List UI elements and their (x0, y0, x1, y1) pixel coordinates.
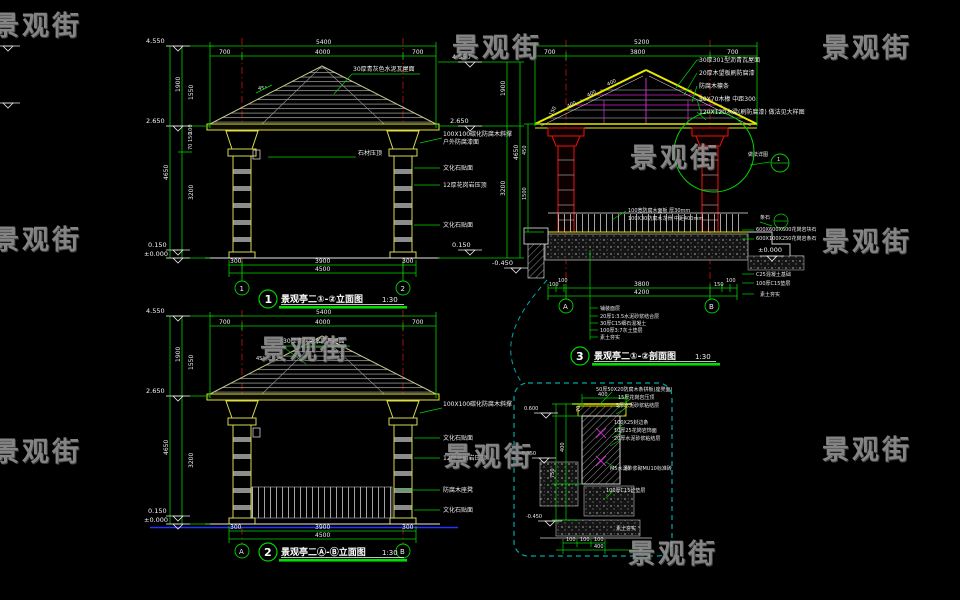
dim-label: 4000 (315, 319, 330, 326)
note-label: C25混凝土基础 (756, 271, 791, 278)
dim-label: 300 (230, 524, 242, 531)
note-label: 5厚水泥砂浆粘结层 (616, 402, 659, 409)
dim-label: 150 (188, 132, 194, 142)
cad-drawing-sheet: 5400 700 4000 700 300 3900 300 4500 4650… (0, 0, 960, 600)
note-label: 文化石贴面 (443, 164, 473, 172)
dim-label: 1550 (188, 355, 195, 370)
dim-label: 700 (412, 319, 424, 326)
drawing-4-detail: 400 400 750 70 30 100 100 100 400 0.600 … (511, 280, 673, 556)
dim-label: 400 (560, 442, 566, 452)
dim-label: 3900 (315, 524, 330, 531)
dim-label: 1500 (522, 187, 528, 200)
dim-label: 100 (580, 537, 590, 543)
note-label: 600X100X250花岗岩条石 (756, 235, 816, 242)
dim-label: 700 (412, 49, 424, 56)
dim-label: 100 (566, 537, 576, 543)
note-label: 防腐木座凳 (443, 486, 473, 494)
dim-label: 3200 (188, 185, 195, 200)
drawing-scale: 1:30 (695, 353, 711, 361)
dim-label: 4650 (163, 165, 170, 180)
note-label: 石材压顶 (358, 149, 382, 157)
note-label: 文化石贴面 (443, 221, 473, 229)
note-label: 15厚花岗岩压顶 (618, 394, 654, 401)
axis-label: A (239, 548, 244, 556)
note-label: M5水泥砂浆砌MU10标准砖 (610, 465, 672, 472)
note-label: 30厚C15细石混凝土 (600, 320, 646, 327)
dim-label: 3200 (500, 181, 507, 196)
dim-label: 300 (402, 524, 414, 531)
dim-label: 4500 (315, 266, 330, 273)
drawing-3-title: 3 景观亭二①-②剖面图 1:30 (571, 347, 720, 366)
note-label: 20厚水泥砂浆粘结层 (614, 435, 660, 442)
dim-label: 70 (576, 406, 582, 412)
axis-label: A (563, 303, 568, 311)
slope-dim: 400 (566, 100, 577, 110)
elevation-label: 2.650 (450, 117, 469, 125)
dim-label: 3800 (634, 281, 649, 288)
axis-label: B (709, 303, 714, 311)
watermark: 景观街 (630, 136, 720, 175)
cad-canvas[interactable]: 5400 700 4000 700 300 3900 300 4500 4650… (0, 0, 960, 600)
axis-bubbles-3: A B (559, 299, 719, 313)
note-label: 20厚木望板刷防腐漆 (699, 69, 755, 77)
dim-label: 150 (714, 282, 724, 288)
note-label: 12厚花岗岩压顶 (443, 181, 487, 189)
elevation-label: 0.600 (524, 406, 538, 412)
drawing-1-title: 1 景观亭二①-②立面图 1:30 (259, 290, 407, 309)
dim-label: 3800 (630, 49, 645, 56)
note-label: 素土夯实 (760, 291, 780, 298)
elevation-label: 2.650 (146, 387, 165, 395)
dim-label: 700 (219, 49, 231, 56)
dim-label: 5400 (316, 39, 331, 46)
note-label: 10厚25花岗岩饰面 (614, 427, 657, 434)
note-label: 100厚3:7灰土垫层 (600, 327, 643, 334)
axis-label: B (400, 548, 405, 556)
dim-label: 4000 (315, 49, 330, 56)
elevation-label: 0.150 (452, 241, 471, 249)
dim-label: 4200 (634, 289, 649, 296)
detail-leader-curve (511, 280, 547, 383)
drawing-scale: 1:30 (382, 549, 398, 557)
note-label: 100宽防腐木面板 厚30mm (628, 207, 690, 214)
note-label: 条石 (760, 214, 770, 221)
dim-label: 300 (402, 258, 414, 265)
elevation-label: 4.550 (146, 37, 165, 45)
note-label: 素土夯实 (616, 525, 636, 532)
deck-boards (252, 487, 392, 518)
dim-label: 700 (219, 319, 231, 326)
watermark: 景观街 (822, 26, 912, 65)
watermark: 景观街 (0, 218, 82, 257)
dim-label: 1550 (188, 85, 195, 100)
watermark: 景观街 (444, 435, 534, 474)
note-label: 100厚C15垫层 (756, 280, 790, 287)
elevation-label: 0.150 (148, 241, 167, 249)
drawing-number: 1 (265, 293, 273, 306)
column-tag-box (253, 428, 260, 437)
dim-label: 400 (594, 544, 604, 550)
note-label: 100厚C15砼垫层 (606, 487, 645, 494)
watermark: 景观街 (822, 220, 912, 259)
elevation-label: ±0.000 (144, 516, 168, 524)
elevation-label: 4.550 (146, 307, 165, 315)
note-label: 素土夯实 (600, 334, 620, 341)
dim-label: 3200 (188, 453, 195, 468)
watermark: 景观街 (822, 428, 912, 467)
dim-label: 4650 (513, 145, 520, 160)
watermark: 景观街 (260, 328, 350, 367)
elevation-label: ±0.000 (144, 250, 168, 258)
watermark: 景观街 (0, 4, 82, 43)
dim-label: 750 (550, 468, 556, 478)
watermark: 景观街 (0, 430, 82, 469)
drawing-2-title: 2 景观亭二Ⓐ-Ⓑ立面图 1:30 (259, 543, 407, 562)
note-label: 100X25封边条 (614, 419, 648, 426)
note-label: 30厚301型沥青瓦屋面 (699, 56, 760, 64)
dim-label: 1900 (500, 81, 507, 96)
dim-label: 1900 (175, 77, 182, 92)
elevation-label: ±0.000 (758, 246, 782, 254)
detail-ref-label: 做法详图 (748, 151, 768, 158)
note-label: 铺装面层 (600, 305, 620, 312)
note-label: 户外防腐漆面 (443, 138, 479, 146)
elevation-label: 2.650 (146, 117, 165, 125)
dim-label: 70 (188, 144, 194, 150)
watermark: 景观街 (452, 26, 542, 65)
drawing-title: 景观亭二①-②剖面图 (594, 350, 676, 362)
note-label: 防腐木檩条 (699, 82, 729, 90)
dim-label: 100 (594, 537, 604, 543)
drawing-number: 3 (576, 350, 584, 363)
drawing-number: 2 (264, 546, 272, 559)
axis-label: 2 (401, 285, 405, 293)
note-label: 50厚50X20防腐木条拼板(座凳面) (596, 386, 672, 393)
slope-dim: 150 (548, 106, 558, 117)
note-label: 30厚青灰色水泥瓦屋面 (353, 65, 415, 73)
watermark: 景观街 (628, 532, 718, 571)
dim-label: 4650 (163, 440, 170, 455)
dim-label: 5400 (316, 309, 331, 316)
note-label: 100X100碳化防腐木斜撑 (443, 130, 512, 138)
note-label: 600X600X600花岗岩块石 (756, 226, 816, 233)
dim-label: 100 (558, 278, 568, 284)
drawing-title: 景观亭二①-②立面图 (281, 293, 363, 305)
elevation-label: -0.450 (492, 259, 513, 267)
dim-label: 700 (544, 49, 556, 56)
dim-label: 450 (522, 145, 528, 155)
dim-label: 700 (727, 49, 739, 56)
elevation-label: -0.450 (526, 514, 542, 520)
note-label: 50X70木椽 中距300 (699, 95, 756, 103)
note-label: 20厚1:3.5水泥砂浆结合层 (600, 313, 659, 320)
note-label: 100X100碳化防腐木斜撑 (443, 400, 512, 408)
dim-label: 4500 (315, 532, 330, 539)
note-label: 文化石贴面 (443, 506, 473, 514)
dim-label: 300 (230, 258, 242, 265)
dim-label: 1900 (175, 347, 182, 362)
dim-label: 100 (726, 278, 736, 284)
elevation-label: 0.150 (148, 507, 167, 515)
detail-bubble-number: 1 (777, 157, 780, 163)
note-label: 100X30防腐木龙骨 中距400mm (628, 215, 703, 222)
drawing-3-section: 1 做法详图 5200 700 3800 700 100 100 3800 15… (492, 39, 816, 366)
axis-label: 1 (240, 285, 244, 293)
drawing-scale: 1:30 (382, 296, 398, 304)
dim-label: 5200 (634, 39, 649, 46)
dim-label: 3900 (315, 258, 330, 265)
drawing-title: 景观亭二Ⓐ-Ⓑ立面图 (281, 546, 366, 558)
drawing-1-elevation: 5400 700 4000 700 300 3900 300 4500 4650… (0, 37, 524, 309)
note-label: 120X120木梁(刷防腐漆) 做法见大样图 (699, 108, 805, 116)
